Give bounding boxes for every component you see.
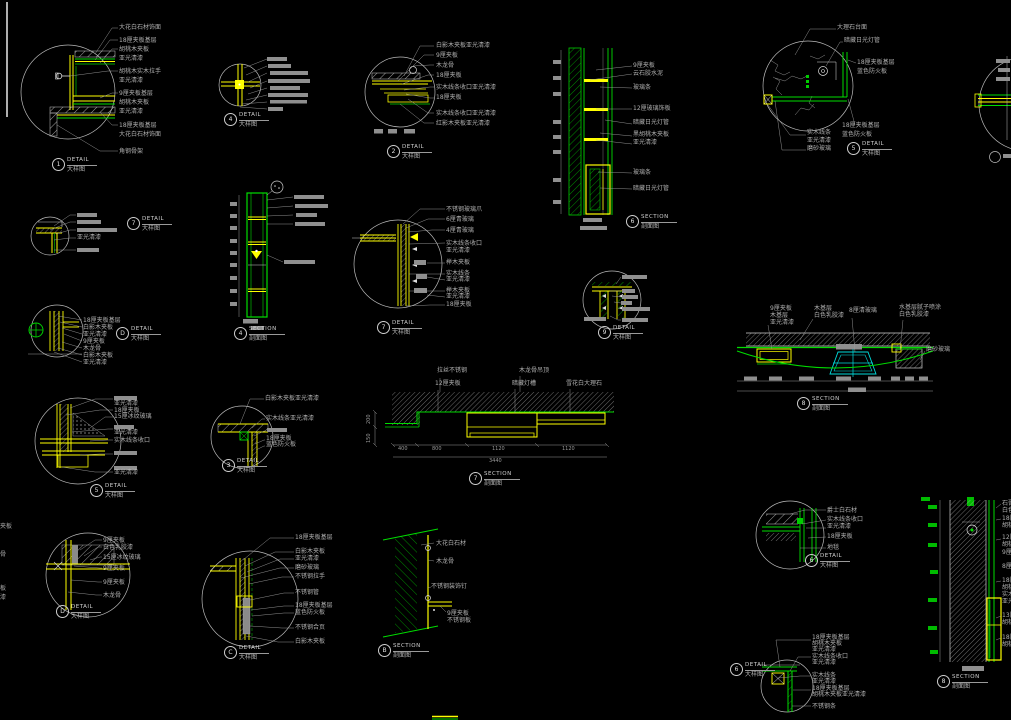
annotation-label: 亚光清漆 [295, 556, 319, 562]
section-bubble: 7 [469, 472, 482, 485]
detail-title-5b: 5 DETAIL 大样图 [90, 484, 135, 499]
detail-bubble: D [56, 605, 69, 618]
annotation-label: 实木线条亚光清漆 [266, 416, 314, 422]
section-bubble: 8 [797, 397, 810, 410]
subtitle-text: 大样图 [402, 154, 432, 160]
title-text: SECTION [952, 675, 988, 683]
edge-fragment: 骨 [0, 552, 6, 558]
annotation-label: 蓝色防火板 [266, 442, 296, 448]
subtitle-text: 大样图 [392, 330, 422, 336]
annotation-label: 拉丝不锈钢 [437, 368, 467, 374]
detail-title-2: 2 DETAIL 大样图 [387, 145, 432, 160]
annotation-label: 暗藏日光灯管 [633, 120, 669, 126]
dim-text: 150 [367, 433, 372, 443]
annotation-label: 榉木夹板 [446, 260, 470, 266]
detail-7-art [352, 209, 445, 308]
annotation-label: 亚光清漆 [119, 109, 143, 115]
annotation-label: 胡桃木夹板 [119, 100, 149, 106]
dim-text: 3440 [489, 459, 502, 464]
annotation-label: 暗藏灯槽 [512, 381, 536, 387]
annotation-label: 地毯 [827, 545, 839, 551]
annotation-label: 白影木夹板 [295, 639, 325, 645]
annotation-label: 9厘夹板 [436, 53, 458, 59]
subtitle-text: 大样图 [862, 151, 892, 157]
subtitle-text: 大样图 [239, 122, 269, 128]
section-bubble: 8 [937, 675, 950, 688]
section-bubble: 6 [626, 215, 639, 228]
annotation-label: 不锈钢管 [295, 590, 319, 596]
annotation-label: 玻璃条 [633, 170, 651, 176]
detail-C-art [202, 538, 298, 647]
annotation-label: 云石胶水泥 [633, 71, 663, 77]
annotation-label: 雪花白大理石 [566, 381, 602, 387]
annotation-label: 不锈钢合页 [295, 625, 325, 631]
detail-bubble: 2 [387, 145, 400, 158]
annotation-label: 亚光清漆 [807, 138, 831, 144]
title-text: DETAIL [392, 321, 422, 329]
edge-fragment: 夹板 [0, 524, 12, 530]
drawing-linework [0, 0, 1011, 720]
annotation-label: 磨砂玻璃 [926, 347, 950, 353]
annotation-label: 9厘夹板 [1002, 550, 1011, 556]
annotation-label: 白色乳胶漆 [103, 545, 133, 551]
annotation-label: 大理石台面 [837, 25, 867, 31]
section-6-art [553, 48, 632, 230]
subtitle-text: 大样图 [820, 563, 850, 569]
detail-title-C: C DETAIL 大样图 [224, 646, 269, 661]
annotation-label: 胡桃木 [1002, 642, 1011, 648]
annotation-label: 暗藏日光灯管 [844, 38, 880, 44]
annotation-label: 亚光清漆 [119, 56, 143, 62]
section-title-8r: 8 SECTION 剖面图 [937, 675, 988, 690]
annotation-label: 亚光清漆 [827, 524, 851, 530]
annotation-label: 18厘夹板基层 [295, 535, 333, 541]
subtitle-text: 剖面图 [484, 481, 520, 487]
annotation-label: 亚光清 [1002, 599, 1011, 605]
annotation-label: 实木线条收口亚光清漆 [436, 85, 496, 91]
annotation-label: 胡桃木 [1002, 542, 1011, 548]
annotation-label: 实木线条 [807, 130, 831, 136]
annotation-label: 18厘夹板基层 [119, 38, 157, 44]
annotation-label: 不锈钢板 [447, 618, 471, 624]
edge-fragment: 板 [0, 586, 6, 592]
subtitle-text: 大样图 [71, 614, 101, 620]
title-text: SECTION [484, 472, 520, 480]
annotation-label: 胡桃木实木拉手 [119, 69, 161, 75]
annotation-label: 18厘夹板基层 [842, 123, 880, 129]
detail-bubble: 9 [598, 326, 611, 339]
subtitle-text: 剖面图 [641, 224, 677, 230]
annotation-label: 亚光清漆 [114, 430, 138, 436]
section-bubble: B [378, 644, 391, 657]
annotation-label: 大花白石材 [436, 541, 466, 547]
annotation-label: 蓝色防火板 [857, 69, 887, 75]
section-title-7: 7 SECTION 剖面图 [469, 472, 520, 487]
title-text: DETAIL [237, 459, 267, 467]
annotation-label: 磨砂玻璃 [295, 565, 319, 571]
subtitle-text: 大样图 [131, 336, 161, 342]
annotation-label: 蓝色防火板 [295, 610, 325, 616]
annotation-label: 胡桃木夹板 [119, 47, 149, 53]
annotation-label: 18厘夹板 [436, 95, 462, 101]
detail-title-7: 7 DETAIL 大样图 [377, 321, 422, 336]
annotation-label: 木龙骨吊顶 [519, 368, 549, 374]
annotation-label: 白色乳胶漆 [899, 312, 929, 318]
section-title-8c: 8 SECTION 剖面图 [797, 397, 848, 412]
title-text: DETAIL [142, 217, 172, 225]
subtitle-text: 大样图 [237, 468, 267, 474]
title-text: DETAIL [402, 145, 432, 153]
detail-title-br: 6 DETAIL 大样图 [730, 663, 775, 678]
annotation-label: 实木线条收口 [114, 438, 150, 444]
annotation-label: 15厘冰纹玻璃 [103, 555, 141, 561]
edge-fragment: 漆 [0, 595, 6, 601]
subtitle-text: 大样图 [67, 167, 97, 173]
detail-title-b: 7 DETAIL 大样图 [127, 217, 172, 232]
detail-title-3: 3 DETAIL 大样图 [222, 459, 267, 474]
detail-title-6r: 6 DETAIL 大样图 [805, 554, 850, 569]
annotation-label: 亚光清漆 [446, 277, 470, 283]
annotation-label: 木龙骨 [436, 559, 454, 565]
annotation-label: 亚光清漆 [77, 235, 101, 241]
annotation-label: 9厘夹板 [633, 63, 655, 69]
subtitle-text: 大样图 [142, 226, 172, 232]
annotation-label: 8厘清玻璃 [849, 308, 877, 314]
detail-4-art [219, 57, 310, 111]
section-bubble: 4 [234, 327, 247, 340]
detail-d2-left-art [28, 305, 83, 362]
title-text: DETAIL [239, 113, 269, 121]
title-text: DETAIL [67, 158, 97, 166]
detail-bubble: 7 [127, 217, 140, 230]
annotation-label: 不锈钢条 [812, 704, 836, 710]
title-text: DETAIL [71, 605, 101, 613]
detail-bubble: 5 [847, 142, 860, 155]
subtitle-text: 大样图 [745, 672, 775, 678]
detail-title-4: 4 DETAIL 大样图 [224, 113, 269, 128]
annotation-label: 爵士白石材 [827, 508, 857, 514]
annotation-label: 白色乳胶漆 [814, 313, 844, 319]
title-text: DETAIL [239, 646, 269, 654]
title-text: DETAIL [105, 484, 135, 492]
annotation-label: 15厘冰纹玻璃 [114, 414, 152, 420]
detail-bubble: 3 [222, 459, 235, 472]
annotation-label: 木龙骨 [436, 63, 454, 69]
section-title-4: 4 SECTION 剖面图 [234, 327, 285, 342]
section-title-B: B SECTION 剖面图 [378, 644, 429, 659]
annotation-label: 9厘夹板基层 [119, 91, 153, 97]
title-text: SECTION [249, 327, 285, 335]
annotation-label: 9厘夹板 [103, 566, 125, 572]
annotation-label: 18厘夹板基层 [119, 123, 157, 129]
title-text: DETAIL [820, 554, 850, 562]
annotation-label: 大花白石材饰面 [119, 132, 161, 138]
annotation-label: 白影木夹板亚光清漆 [265, 396, 319, 402]
section-7-central-art [373, 376, 614, 457]
dim-text: 800 [432, 447, 442, 452]
annotation-label: 角钢骨架 [119, 149, 143, 155]
annotation-label: 暗藏日光灯管 [633, 186, 669, 192]
detail-1-art [21, 28, 118, 151]
partial-detail-right-art [975, 56, 1011, 163]
title-text: DETAIL [862, 142, 892, 150]
annotation-label: 白色乳 [1002, 508, 1011, 514]
detail-mid-small-art [583, 271, 650, 329]
subtitle-text: 剖面图 [393, 653, 429, 659]
title-text: SECTION [393, 644, 429, 652]
dim-text: 1120 [492, 447, 505, 452]
detail-bubble: 7 [377, 321, 390, 334]
annotation-label: 不锈钢拉手 [295, 574, 325, 580]
annotation-label: 亚光清漆 [812, 660, 836, 666]
section-8-right-art [921, 497, 1001, 671]
annotation-label: 红影木夹板亚光清漆 [436, 121, 490, 127]
title-text: DETAIL [613, 326, 643, 334]
annotation-label: 胡桃木 [1002, 620, 1011, 626]
title-text: SECTION [812, 397, 848, 405]
annotation-label: 不锈钢玻璃爪 [446, 207, 482, 213]
detail-bubble: 1 [52, 158, 65, 171]
annotation-label: 亚光清漆 [770, 320, 794, 326]
annotation-label: 不锈钢装饰钉 [431, 584, 467, 590]
annotation-label: 亚光清漆 [446, 248, 470, 254]
detail-title-D: D DETAIL 大样图 [56, 605, 101, 620]
subtitle-text: 剖面图 [249, 336, 285, 342]
detail-b-left-art [31, 213, 117, 255]
annotation-label: 4厘青玻璃 [446, 228, 474, 234]
detail-2-art [365, 46, 435, 134]
subtitle-text: 剖面图 [952, 684, 988, 690]
detail-bubble: 6 [730, 663, 743, 676]
annotation-label: 12厘玻璃饰板 [633, 106, 671, 112]
subtitle-text: 大样图 [105, 493, 135, 499]
annotation-label: 8厘玻 [1002, 564, 1011, 570]
detail-bubble: 5 [90, 484, 103, 497]
annotation-label: 亚光清漆 [633, 140, 657, 146]
annotation-label: 亚光清漆 [446, 294, 470, 300]
annotation-label: 蓝色防火板 [842, 132, 872, 138]
cad-sheet: 大花白石材饰面 18厘夹板基层 胡桃木夹板 亚光清漆 胡桃木实木拉手 亚光清漆 … [0, 0, 1011, 720]
annotation-label: 亚光清漆 [114, 470, 138, 476]
detail-bubble: 6 [805, 554, 818, 567]
section-4-mid-art [230, 181, 328, 330]
detail-bubble: C [224, 646, 237, 659]
annotation-label: 大花白石材饰面 [119, 25, 161, 31]
section-8-counter-art [737, 318, 933, 392]
annotation-label: 木龙骨 [103, 593, 121, 599]
subtitle-text: 大样图 [239, 655, 269, 661]
dim-text: 1120 [562, 447, 575, 452]
detail-title-5t: 5 DETAIL 大样图 [847, 142, 892, 157]
detail-bubble: 4 [224, 113, 237, 126]
annotation-label: 磨砂玻璃 [807, 146, 831, 152]
title-text: DETAIL [131, 327, 161, 335]
annotation-label: 6厘青玻璃 [446, 217, 474, 223]
annotation-label: 亚光清漆 [119, 78, 143, 84]
subtitle-text: 大样图 [613, 335, 643, 341]
detail-title-m: 9 DETAIL 大样图 [598, 326, 643, 341]
annotation-label: 9厘夹板 [103, 580, 125, 586]
subtitle-text: 剖面图 [812, 406, 848, 412]
annotation-label: 亚光清漆 [83, 360, 107, 366]
annotation-label: 胡桃木 [1002, 523, 1011, 529]
detail-bubble: D [116, 327, 129, 340]
title-text: DETAIL [745, 663, 775, 671]
annotation-label: 白影木夹板亚光清漆 [436, 43, 490, 49]
detail-title-d2: D DETAIL 大样图 [116, 327, 161, 342]
annotation-label: 黑胡桃木夹板 [633, 132, 669, 138]
annotation-label: 胡桃木夹板亚光清漆 [812, 692, 866, 698]
annotation-label: 实木线条收口亚光清漆 [436, 111, 496, 117]
annotation-label: 18厘夹板 [436, 73, 462, 79]
annotation-label: 18厘夹板 [446, 302, 472, 308]
annotation-label: 18厘夹板基层 [857, 60, 895, 66]
annotation-label: 18厘夹板 [827, 534, 853, 540]
annotation-label: 12厘夹板 [435, 381, 461, 387]
dim-text: 200 [367, 414, 372, 424]
dim-text: 400 [398, 447, 408, 452]
section-title-6: 6 SECTION 剖面图 [626, 215, 677, 230]
detail-title-1: 1 DETAIL 大样图 [52, 158, 97, 173]
title-text: SECTION [641, 215, 677, 223]
annotation-label: 玻璃条 [633, 85, 651, 91]
